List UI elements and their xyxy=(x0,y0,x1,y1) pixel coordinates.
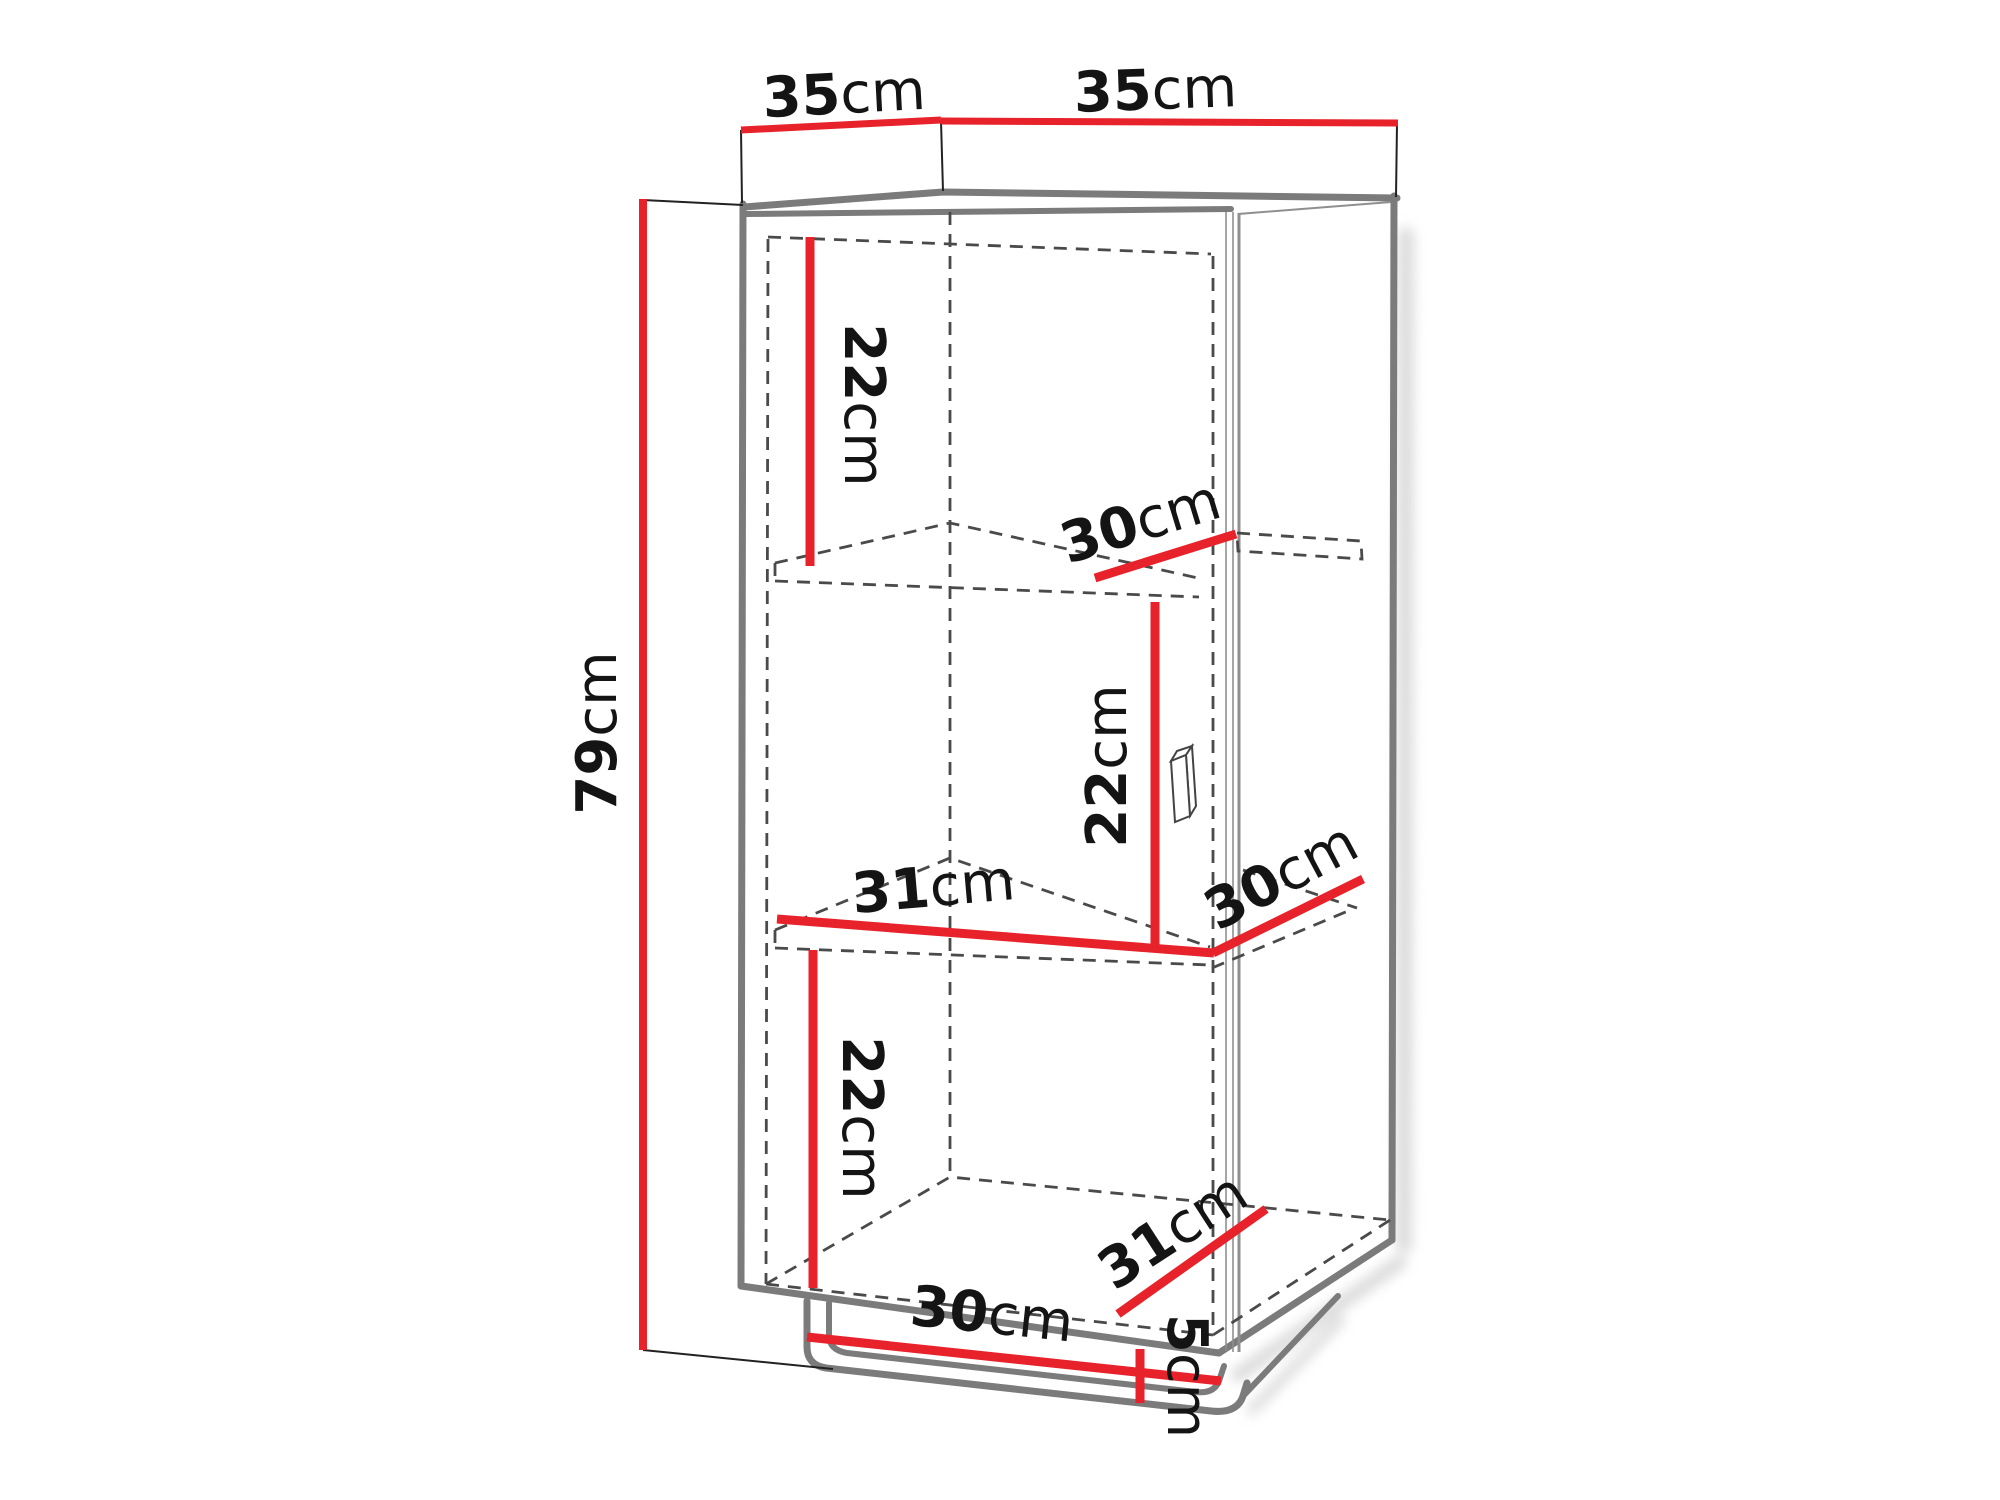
diagram-canvas: 35cm 35cm 79cm 22cm 30cm 22cm 31cm 30cm … xyxy=(0,0,2000,1500)
width-right-extension xyxy=(1396,124,1397,197)
cabinet-diagram: 35cm 35cm 79cm 22cm 30cm 22cm 31cm 30cm … xyxy=(0,0,2000,1500)
height-top-extension xyxy=(643,200,743,205)
front-left-edge xyxy=(741,204,743,1286)
handle-front-face xyxy=(1171,755,1190,822)
side-top-edge xyxy=(1238,202,1391,214)
back-right-edge xyxy=(1392,196,1394,1240)
top-front-rim xyxy=(746,209,1231,214)
dimension-labels: 35cm 35cm 79cm 22cm 30cm 22cm 31cm 30cm … xyxy=(565,55,1369,1438)
extension-lines xyxy=(643,121,1397,1369)
label-bottom-width: 30cm xyxy=(907,1274,1076,1356)
label-top-width: 35cm xyxy=(1073,55,1238,126)
right-panel-shadow xyxy=(1404,235,1406,1245)
red-dimension-lines xyxy=(643,120,1398,1403)
plinth-right-edge xyxy=(1245,1296,1338,1394)
label-plinth-height: 5cm xyxy=(1154,1314,1219,1438)
upper-shelf-right-part xyxy=(1237,533,1362,559)
label-upper-compartment: 22cm xyxy=(831,323,896,486)
depth-left-extension xyxy=(741,130,742,203)
middle-shelf-width-line xyxy=(777,919,1214,953)
interior-left-vertical xyxy=(766,239,768,1284)
top-corner-extension xyxy=(941,121,943,191)
top-back-rim xyxy=(744,192,1397,207)
label-middle-shelf-width: 31cm xyxy=(849,848,1017,927)
label-top-depth: 35cm xyxy=(761,58,927,131)
label-height: 79cm xyxy=(565,651,630,814)
door-handle xyxy=(1171,746,1196,822)
label-lower-compartment: 22cm xyxy=(829,1036,894,1199)
upper-shelf-front-bottom xyxy=(775,581,1199,597)
interior-ceiling-edge xyxy=(768,237,1211,254)
label-middle-compartment: 22cm xyxy=(1075,684,1140,847)
